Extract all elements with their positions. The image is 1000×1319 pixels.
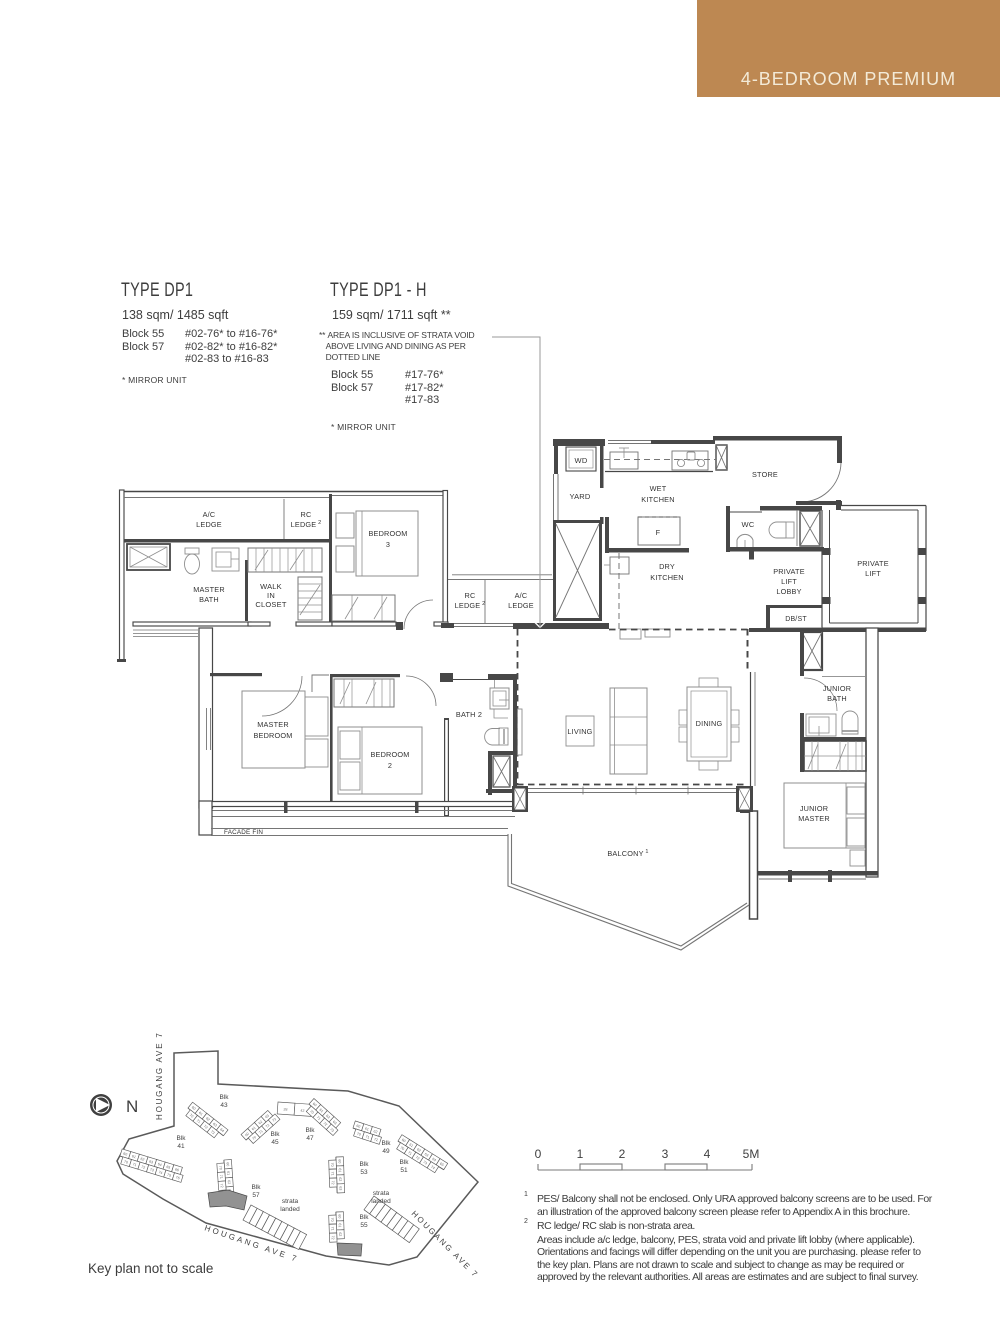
svg-text:BEDROOM: BEDROOM [253, 731, 292, 740]
svg-text:72: 72 [331, 1236, 335, 1240]
svg-text:3: 3 [386, 540, 390, 549]
svg-text:71: 71 [330, 1172, 334, 1176]
svg-text:LIVING: LIVING [567, 727, 592, 736]
svg-text:61: 61 [338, 1223, 342, 1227]
svg-text:BALCONY 1: BALCONY 1 [607, 849, 648, 858]
svg-text:PRIVATE: PRIVATE [773, 567, 805, 576]
svg-text:71: 71 [330, 1227, 334, 1231]
svg-text:F: F [656, 528, 661, 537]
svg-text:70: 70 [330, 1163, 334, 1167]
svg-text:LIFT: LIFT [781, 577, 797, 586]
svg-text:Blk: Blk [359, 1214, 369, 1221]
svg-text:61: 61 [226, 1171, 230, 1175]
svg-text:53: 53 [360, 1169, 368, 1176]
svg-text:BATH: BATH [827, 694, 847, 703]
svg-text:42: 42 [300, 1109, 304, 1113]
svg-text:LIFT: LIFT [865, 569, 881, 578]
svg-text:60: 60 [337, 1214, 341, 1218]
svg-text:A/C: A/C [515, 591, 528, 600]
svg-text:Blk: Blk [270, 1131, 280, 1138]
svg-text:KITCHEN: KITCHEN [650, 573, 683, 582]
svg-text:62: 62 [338, 1232, 342, 1236]
svg-text:LEDGE 2: LEDGE 2 [455, 601, 486, 610]
svg-text:62: 62 [227, 1180, 231, 1184]
svg-text:LEDGE 2: LEDGE 2 [291, 520, 322, 529]
svg-text:WET: WET [650, 484, 667, 493]
svg-text:41: 41 [177, 1143, 185, 1150]
svg-text:71: 71 [219, 1175, 223, 1179]
svg-text:RC: RC [301, 510, 312, 519]
svg-text:Blk: Blk [381, 1140, 391, 1147]
svg-text:43: 43 [220, 1102, 228, 1109]
svg-text:LEDGE: LEDGE [508, 601, 534, 610]
svg-text:47: 47 [306, 1135, 314, 1142]
svg-text:55: 55 [360, 1222, 368, 1229]
svg-text:61: 61 [338, 1168, 342, 1172]
svg-text:STORE: STORE [752, 470, 778, 479]
svg-text:28: 28 [283, 1107, 287, 1111]
svg-text:60: 60 [337, 1159, 341, 1163]
svg-text:2: 2 [388, 761, 392, 770]
svg-text:Blk: Blk [176, 1135, 186, 1142]
svg-text:HOUGANG AVE 7: HOUGANG AVE 7 [410, 1209, 481, 1280]
svg-text:57: 57 [252, 1192, 260, 1199]
svg-text:JUNIOR: JUNIOR [800, 804, 828, 813]
svg-text:MASTER: MASTER [257, 720, 289, 729]
svg-text:landed: landed [280, 1206, 300, 1213]
svg-text:MASTER: MASTER [193, 585, 225, 594]
svg-text:DINING: DINING [696, 719, 723, 728]
svg-text:72: 72 [220, 1184, 224, 1188]
svg-text:YARD: YARD [569, 492, 590, 501]
svg-text:72: 72 [331, 1181, 335, 1185]
svg-text:KITCHEN: KITCHEN [641, 495, 674, 504]
svg-text:WD: WD [575, 456, 588, 465]
svg-text:70: 70 [330, 1218, 334, 1222]
svg-text:51: 51 [400, 1167, 408, 1174]
svg-text:70: 70 [218, 1166, 222, 1170]
svg-text:4: 4 [704, 1147, 711, 1161]
svg-text:45: 45 [271, 1139, 279, 1146]
svg-text:Blk: Blk [305, 1127, 315, 1134]
svg-text:WALK: WALK [260, 582, 282, 591]
svg-text:RC: RC [465, 591, 476, 600]
svg-text:0: 0 [535, 1147, 542, 1161]
svg-text:BEDROOM: BEDROOM [370, 750, 409, 759]
svg-text:60: 60 [225, 1162, 229, 1166]
svg-text:CLOSET: CLOSET [255, 600, 286, 609]
svg-text:62: 62 [338, 1177, 342, 1181]
svg-text:63: 63 [338, 1186, 342, 1190]
svg-text:LEDGE: LEDGE [196, 520, 222, 529]
svg-text:Blk: Blk [219, 1094, 229, 1101]
svg-text:FACADE FIN: FACADE FIN [224, 829, 263, 836]
svg-text:DRY: DRY [659, 562, 675, 571]
svg-text:WC: WC [742, 520, 755, 529]
svg-text:BATH 2: BATH 2 [456, 710, 482, 719]
svg-text:Blk: Blk [251, 1184, 261, 1191]
svg-text:BEDROOM: BEDROOM [368, 529, 407, 538]
svg-text:MASTER: MASTER [798, 814, 830, 823]
svg-text:A/C: A/C [203, 510, 216, 519]
svg-text:2: 2 [619, 1147, 626, 1161]
svg-text:JUNIOR: JUNIOR [823, 684, 851, 693]
svg-text:5M: 5M [743, 1147, 760, 1161]
svg-text:49: 49 [382, 1148, 390, 1155]
svg-text:1: 1 [577, 1147, 584, 1161]
svg-text:LOBBY: LOBBY [776, 587, 801, 596]
svg-text:N: N [126, 1097, 138, 1116]
svg-text:landed: landed [371, 1198, 391, 1205]
svg-text:Blk: Blk [399, 1159, 409, 1166]
svg-text:IN: IN [267, 591, 275, 600]
svg-text:3: 3 [662, 1147, 669, 1161]
svg-text:BATH: BATH [199, 595, 219, 604]
svg-text:Blk: Blk [359, 1161, 369, 1168]
svg-text:strata: strata [282, 1198, 299, 1205]
svg-text:PRIVATE: PRIVATE [857, 559, 889, 568]
svg-text:HOUGANG AVE 7: HOUGANG AVE 7 [155, 1031, 164, 1120]
svg-text:DB/ST: DB/ST [785, 616, 807, 623]
svg-text:strata: strata [373, 1190, 390, 1197]
